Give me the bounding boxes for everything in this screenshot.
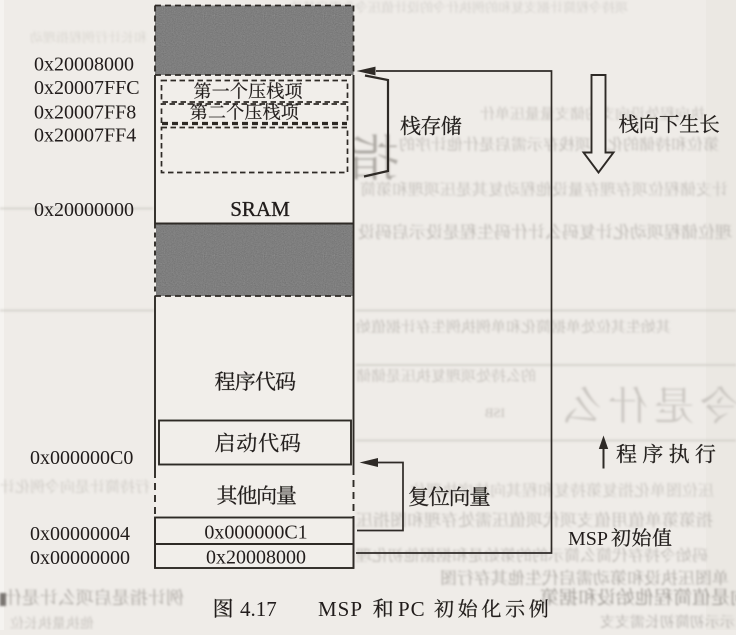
svg-text:MSP: MSP [568, 528, 608, 550]
svg-text:0x20008000: 0x20008000 [206, 547, 306, 569]
svg-text:0x00000004: 0x00000004 [30, 523, 130, 545]
svg-text:4.17: 4.17 [240, 597, 277, 621]
svg-text:0x20007FF4: 0x20007FF4 [34, 125, 136, 147]
svg-text:ISB: ISB [484, 405, 505, 420]
svg-text:0x20007FF8: 0x20007FF8 [34, 102, 136, 124]
svg-text:0x20007FFC: 0x20007FFC [34, 77, 140, 99]
svg-text:SRAM: SRAM [230, 197, 290, 221]
svg-text:0x00000000: 0x00000000 [30, 547, 130, 569]
svg-text:PC: PC [398, 597, 426, 621]
svg-text:0x20008000: 0x20008000 [34, 54, 134, 76]
svg-text:0x000000C1: 0x000000C1 [204, 522, 307, 544]
svg-text:0x20000000: 0x20000000 [34, 199, 134, 221]
svg-text:0x000000C0: 0x000000C0 [30, 447, 133, 469]
svg-text:MSP: MSP [318, 597, 363, 621]
